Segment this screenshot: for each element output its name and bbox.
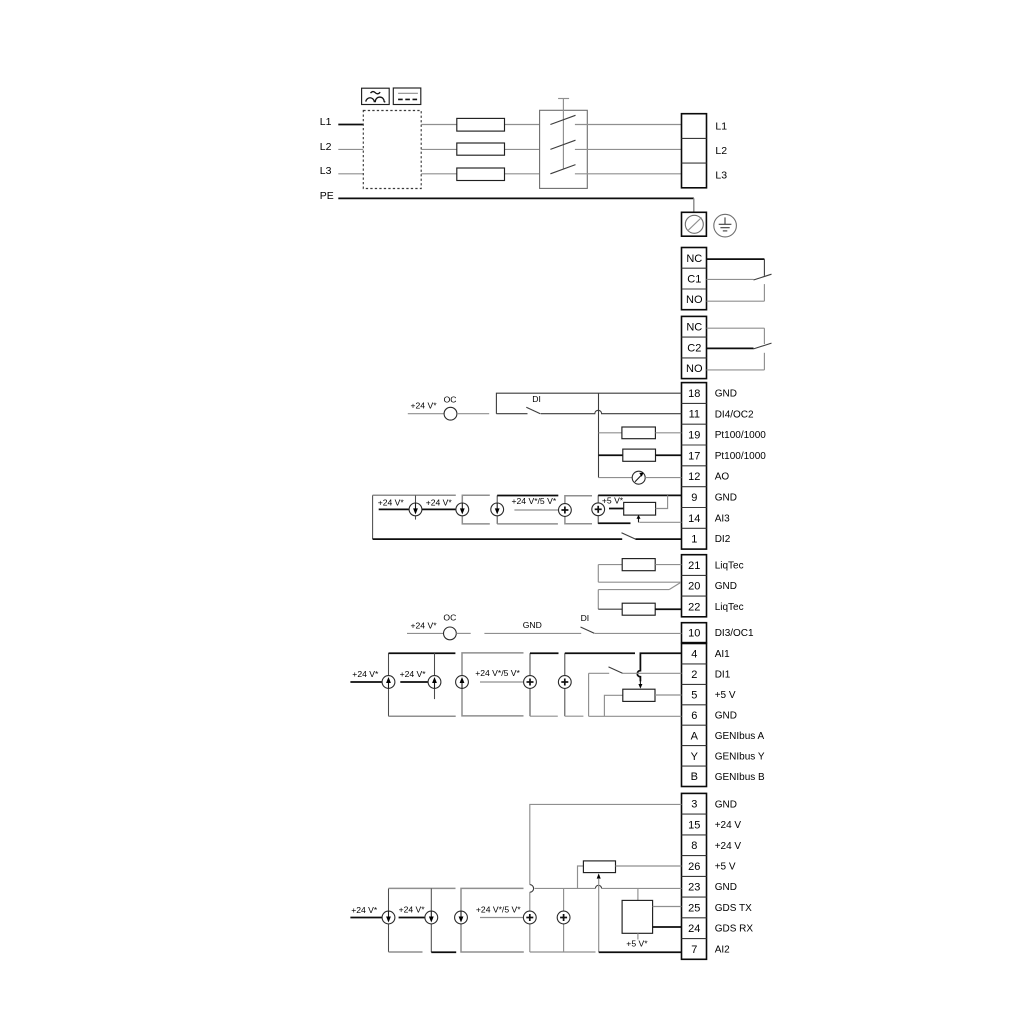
svg-text:3: 3 (691, 799, 697, 811)
svg-text:NO: NO (686, 363, 703, 375)
svg-text:L1: L1 (320, 116, 332, 128)
svg-text:GND: GND (715, 882, 737, 893)
svg-text:Pt100/1000: Pt100/1000 (715, 451, 767, 462)
svg-text:+24 V*: +24 V* (352, 669, 379, 679)
svg-text:18: 18 (688, 388, 700, 400)
svg-text:LiqTec: LiqTec (715, 602, 744, 613)
svg-text:12: 12 (688, 471, 700, 483)
svg-text:L3: L3 (320, 165, 332, 177)
svg-text:9: 9 (691, 492, 697, 504)
svg-text:NC: NC (686, 322, 702, 334)
svg-text:+24 V*: +24 V* (399, 904, 426, 914)
svg-text:5: 5 (691, 690, 697, 702)
svg-text:L2: L2 (320, 141, 332, 153)
svg-text:+24 V*: +24 V* (411, 621, 438, 631)
svg-text:11: 11 (689, 409, 700, 421)
svg-text:Pt100/1000: Pt100/1000 (715, 430, 767, 441)
svg-text:AI1: AI1 (715, 649, 730, 660)
svg-text:DI: DI (532, 394, 541, 404)
svg-text:+24 V*/5 V*: +24 V*/5 V* (476, 904, 521, 914)
svg-text:C1: C1 (687, 274, 701, 286)
svg-text:+24 V*: +24 V* (351, 905, 378, 915)
svg-text:NO: NO (686, 294, 703, 306)
svg-text:GENIbus Y: GENIbus Y (715, 751, 765, 762)
svg-text:GND: GND (715, 711, 737, 722)
svg-text:+24 V*: +24 V* (411, 400, 438, 410)
svg-text:GDS TX: GDS TX (715, 903, 752, 914)
svg-text:+24 V*: +24 V* (426, 498, 453, 508)
svg-text:19: 19 (688, 430, 700, 442)
svg-text:26: 26 (688, 861, 700, 873)
svg-text:25: 25 (688, 902, 700, 914)
svg-text:GDS RX: GDS RX (715, 924, 754, 935)
svg-text:+24 V*/5 V*: +24 V*/5 V* (512, 496, 557, 506)
svg-text:GND: GND (523, 620, 542, 630)
svg-text:Y: Y (691, 751, 699, 763)
svg-text:AI2: AI2 (715, 944, 730, 955)
svg-text:+24 V: +24 V (715, 820, 742, 831)
svg-text:GND: GND (715, 799, 737, 810)
svg-text:+5 V*: +5 V* (602, 496, 624, 506)
svg-text:AI3: AI3 (715, 513, 730, 524)
svg-text:DI: DI (581, 613, 590, 623)
svg-text:1: 1 (691, 534, 697, 546)
svg-text:7: 7 (691, 944, 697, 956)
svg-text:+5 V: +5 V (715, 690, 736, 701)
svg-text:DI2: DI2 (715, 534, 731, 545)
svg-text:AO: AO (715, 472, 730, 483)
svg-text:A: A (691, 730, 699, 742)
svg-text:L1: L1 (715, 120, 727, 132)
svg-text:4: 4 (691, 649, 697, 661)
svg-text:OC: OC (444, 394, 457, 404)
svg-text:GENIbus B: GENIbus B (715, 772, 765, 783)
svg-text:NC: NC (686, 253, 702, 265)
svg-text:GENIbus A: GENIbus A (715, 731, 765, 742)
svg-text:GND: GND (715, 389, 737, 400)
svg-text:17: 17 (688, 450, 700, 462)
svg-text:PE: PE (320, 190, 334, 202)
svg-text:+24 V*: +24 V* (378, 498, 405, 508)
svg-text:GND: GND (715, 493, 737, 504)
svg-text:L3: L3 (715, 170, 727, 182)
svg-text:OC: OC (443, 613, 456, 623)
svg-text:23: 23 (688, 882, 700, 894)
svg-text:B: B (691, 771, 698, 783)
svg-text:+24 V*: +24 V* (400, 669, 427, 679)
svg-text:+24 V: +24 V (715, 841, 742, 852)
svg-text:+5 V*: +5 V* (626, 939, 648, 949)
svg-text:GND: GND (715, 581, 737, 592)
svg-text:2: 2 (691, 669, 697, 681)
svg-text:10: 10 (688, 628, 700, 640)
svg-text:15: 15 (688, 819, 700, 831)
svg-text:LiqTec: LiqTec (715, 561, 744, 572)
svg-text:L2: L2 (715, 145, 727, 157)
svg-text:6: 6 (691, 710, 697, 722)
svg-text:+24 V*/5 V*: +24 V*/5 V* (475, 668, 520, 678)
svg-text:DI1: DI1 (715, 670, 731, 681)
svg-text:DI4/OC2: DI4/OC2 (715, 409, 754, 420)
svg-text:+5 V: +5 V (715, 862, 736, 873)
svg-text:8: 8 (691, 840, 697, 852)
svg-text:14: 14 (688, 513, 700, 525)
svg-text:20: 20 (688, 581, 700, 593)
svg-text:21: 21 (688, 560, 700, 572)
svg-text:C2: C2 (687, 342, 701, 354)
svg-text:DI3/OC1: DI3/OC1 (715, 628, 754, 639)
svg-text:24: 24 (688, 923, 700, 935)
svg-text:22: 22 (688, 601, 700, 613)
